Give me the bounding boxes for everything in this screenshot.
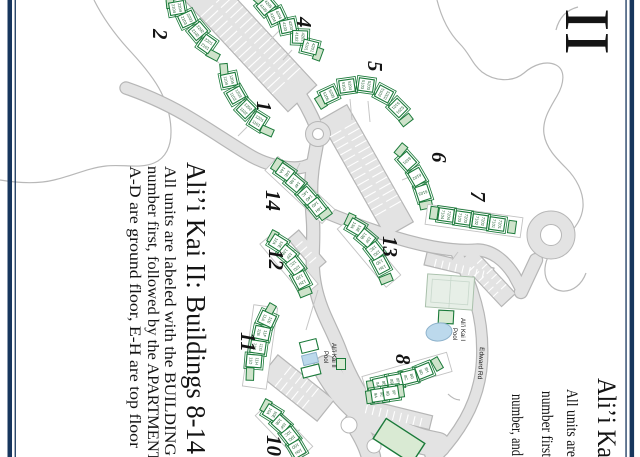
pool1-label-1: Ali’i Kai I [459,318,465,341]
unit-label: 11D [248,357,254,365]
bnum-12: 12 [264,249,288,271]
border-right-thin [625,0,626,457]
pool1-label-2: Pool [451,328,457,340]
bnum-4: 4 [292,16,316,28]
pool2-shed [337,359,346,370]
unit-label: 11H [254,357,260,365]
border-right-thick [630,0,635,457]
building-7-endcap [429,206,438,219]
bnum-5: 5 [363,61,387,72]
unit-label: 9A [373,393,379,399]
pool2-label-1: Ali’i Kai II [330,343,336,368]
left-title: Ali’i Kai II: Buildings 8-14 [181,162,211,454]
left-line-2: number first, followed by the APARTMENT [144,166,161,457]
traffic-island-1 [341,417,357,433]
right-title: Ali’i Ka [592,378,621,457]
left-line-3: A-D are ground floor, E-H are top floor [126,166,143,449]
pool2-label-2: Pool [322,351,328,363]
map-page: 1104120411031203110212021101120121042204… [0,0,640,457]
border-left-thick [8,0,13,457]
pool1-building [438,310,454,324]
right-line-1: All units are [563,389,580,457]
bnum-11: 11 [236,332,260,352]
culdesac-island [541,225,562,246]
right-line-2: number first [538,391,555,457]
right-line-3: number, and [508,394,525,456]
unit-label: 9B [385,391,391,397]
building-11-endcap [246,368,254,381]
bnum-8: 8 [391,354,415,365]
building-7-endcap [507,220,516,233]
mini-roundabout-island [313,129,324,140]
bnum-6: 6 [427,152,451,163]
unit-label: 4102 [294,32,299,42]
left-line-1: All units are labeled with the BUILDING [161,166,178,456]
bnum-1: 1 [252,101,276,112]
border-left-thin [15,0,16,457]
site-map: 1104120411031203110212021101120121042204… [0,0,640,457]
bnum-10: 10 [262,435,286,457]
right-numeral: II [552,8,623,55]
bnum-14: 14 [261,190,285,211]
bnum-13: 13 [378,236,402,257]
bnum-7: 7 [466,191,490,203]
bnum-2: 2 [148,28,172,40]
